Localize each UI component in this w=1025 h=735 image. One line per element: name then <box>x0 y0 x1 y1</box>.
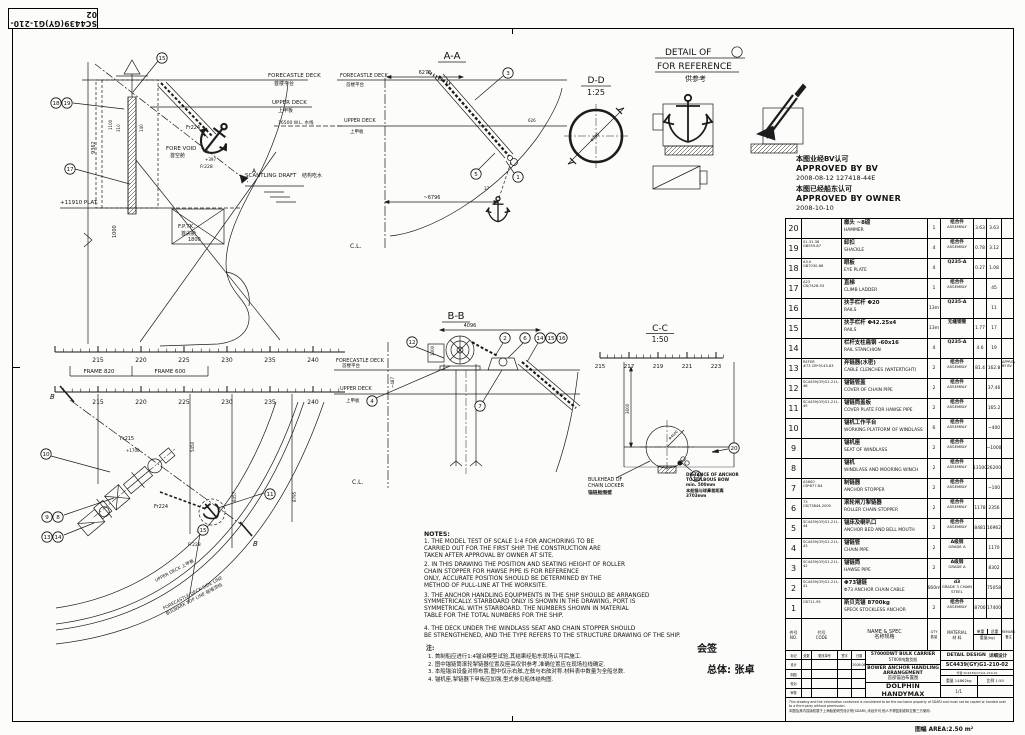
note-item: 4. THE DECK UNDER THE WINDLASS SEAT AND … <box>424 626 726 640</box>
callout-15: 15 <box>198 525 208 535</box>
bom-cell: 4 <box>786 539 802 558</box>
svg-text:12: 12 <box>408 340 415 346</box>
dim: 1800 <box>188 237 201 243</box>
bom-row: 16扶手栏杆 Φ20RAILS13mQ235-A11 <box>786 299 1013 319</box>
bom-cell <box>802 459 842 478</box>
svg-text:240: 240 <box>307 357 319 364</box>
bom-cell: 卸扣SHACKLE <box>842 239 928 258</box>
dd-title: D-D <box>587 76 604 86</box>
callout-12: 12 <box>407 337 417 347</box>
bom-cell: 13m <box>928 319 941 338</box>
svg-text:215: 215 <box>595 364 606 370</box>
bom-cell: 7 <box>786 479 802 498</box>
bom-cell <box>1002 579 1015 598</box>
bom-cell <box>1002 219 1015 238</box>
svg-text:223: 223 <box>711 364 722 370</box>
bom-cell: 18 <box>786 259 802 278</box>
zongti-signature: 总体: 张卓 <box>707 661 754 676</box>
dim: 4096 <box>464 323 477 329</box>
fr215-label: Fr215 <box>120 436 134 442</box>
bom-cell: 15 <box>786 319 802 338</box>
callout-14: 14 <box>535 333 545 343</box>
svg-text:220: 220 <box>135 399 147 406</box>
callout-9: 9 <box>42 512 52 522</box>
svg-text:225: 225 <box>178 357 190 364</box>
bom-cell: 无缝钢管 <box>941 319 974 338</box>
bom-cell: 组合件ASSEMBLY <box>941 279 974 298</box>
titleblock-right: DETAIL DESIGN详细设计 SC4439(GY)G1-210-02 代替… <box>941 651 1013 697</box>
svg-text:16: 16 <box>558 336 566 342</box>
bom-row: 3SC4439(GY)G1-211-42锚链筒HAWSE PIPE2A级钢GRA… <box>786 559 1013 579</box>
bom-cell <box>1002 339 1015 358</box>
bom-cell: 榔头 ~8磅HAMMER <box>842 219 928 238</box>
bom-cell: 锚机WINDLASS AND MOORING WINCH <box>842 459 928 478</box>
bom-row: 11SC4439(GY)G1-211-45锚链筒盖板COVER PLATE FO… <box>786 399 1013 419</box>
svg-text:15: 15 <box>547 336 555 342</box>
notes-block: NOTES: 1. THE MODEL TEST OF SCALE 1:4 FO… <box>424 531 726 684</box>
bom-cell: 滚轮闸刀掣链器ROLLER CHAIN STOPPER <box>842 499 928 518</box>
bom-cell: 组合件ASSEMBLY <box>941 479 974 498</box>
svg-text:217: 217 <box>624 364 635 370</box>
bom-cell <box>1002 299 1015 318</box>
callout-5: 5 <box>471 169 481 179</box>
bom-cell: A23 CB/T428-93 <box>802 279 842 298</box>
dd-scale: 1:25 <box>587 88 605 97</box>
bom-cell <box>1002 319 1015 338</box>
bom-cell: 8302 <box>987 559 1002 578</box>
note-item: 2. IN THIS DRAWING THE POSITION AND SEAT… <box>424 562 726 589</box>
callout-4: 4 <box>367 396 377 406</box>
bom-cell: 10 <box>786 419 802 438</box>
svg-text:1: 1 <box>516 175 520 181</box>
owner-approval-cn: 本图已经船东认可 <box>796 185 1006 194</box>
aa-forecastle-label: FORECASTLE DECK <box>340 73 389 79</box>
bom-cell: 2 <box>928 519 941 538</box>
bom-cell <box>974 419 987 438</box>
bom-cell <box>974 279 987 298</box>
bom-cell: 2 <box>928 359 941 378</box>
dim: 1000 <box>112 225 118 238</box>
callout-3: 3 <box>503 68 513 78</box>
bom-cell: 斯贝克锚 8700kgSPECK STOCKLESS ANCHOR <box>842 599 928 618</box>
bom-cell: 2 <box>928 459 941 478</box>
border-tick <box>12 367 20 368</box>
cc-frame-ruler <box>600 352 723 358</box>
bom-cell: 4 <box>928 339 941 358</box>
detail1-title: DETAIL OF <box>665 48 711 58</box>
bom-cell: 8700 <box>974 599 987 618</box>
drawing-number-box: SC4439(GY)G1-210-02 <box>8 8 98 29</box>
detail-reference-view: DETAIL OF 1 FOR REFERENCE 供参考 <box>645 42 820 197</box>
profile-frame-ruler <box>55 346 345 352</box>
svg-text:20: 20 <box>730 446 738 452</box>
design-stage: DETAIL DESIGN <box>947 653 986 658</box>
callout-15: 15 <box>157 53 167 63</box>
note-item-cn: 4. 锚机座,掣链器下甲板应加强,型式参见船体结构图. <box>428 677 726 684</box>
section-bb-view: B-B 4096 1300 ~487 FORECASTLE DECK 首楼 <box>332 306 584 511</box>
svg-text:220: 220 <box>135 357 147 364</box>
bom-cell: 13100 <box>974 459 987 478</box>
bom-cell: 锚机座SEAT OF WINDLASS <box>842 439 928 458</box>
svg-text:19: 19 <box>63 101 71 107</box>
note-item-cn: 1. 首制船应进行1:4锚泊模型试验,其结果经船东现场认可后施工. <box>428 654 726 661</box>
aa-upper-label: UPPER DECK <box>344 118 376 124</box>
bb-centerline-label: C.L. <box>352 479 363 486</box>
svg-text:锚链舱围壁: 锚链舱围壁 <box>588 489 612 496</box>
svg-text:14: 14 <box>536 336 544 342</box>
callout-14: 14 <box>53 532 63 542</box>
bom-cell: 组合件ASSEMBLY <box>941 459 974 478</box>
bom-cell: 组合件ASSEMBLY <box>941 359 974 378</box>
bom-cell: 1170 <box>987 539 1002 558</box>
bom-row: 673 CB/T3844-2000滚轮闸刀掣链器ROLLER CHAIN STO… <box>786 499 1013 519</box>
drawing-scale: 1:50 <box>995 678 1004 683</box>
frame-label: 215 <box>92 357 104 364</box>
detail-dd-view: D-D 1:25 Φ735 <box>556 72 656 184</box>
svg-text:11: 11 <box>266 492 274 498</box>
svg-text:15: 15 <box>158 56 166 62</box>
profile-view: 215 220 225 230 235 240 FRAME 820 FRAME … <box>40 42 352 382</box>
bom-cell: 0.78 <box>974 239 987 258</box>
bom-cell: 组合件ASSEMBLY <box>941 599 974 618</box>
svg-text:上甲板: 上甲板 <box>278 107 293 114</box>
svg-text:18: 18 <box>52 101 60 107</box>
bom-cell: CB711-95 <box>802 599 842 618</box>
bom-cell <box>974 579 987 598</box>
dim: 6272 <box>419 70 432 76</box>
bom-cell: 1 <box>928 279 941 298</box>
bom-cell: 37.46 <box>987 379 1002 398</box>
bom-cell: 17 <box>987 319 1002 338</box>
dim: Φ4600 <box>668 430 679 441</box>
callout-15: 15 <box>546 333 556 343</box>
bom-cell: 组合件ASSEMBLY <box>941 379 974 398</box>
bom-cell: 制链器ANCHOR STOPPER <box>842 479 928 498</box>
bom-cell: 16 <box>786 299 802 318</box>
bom-cell: 2 <box>786 579 802 598</box>
bom-cell <box>1002 419 1015 438</box>
dim: 1100 <box>108 119 113 130</box>
fore-void-label: FORE VOID <box>166 146 196 152</box>
class-name: DOLPHIN HANDYMAX <box>866 683 940 697</box>
detail1-sub-cn: 供参考 <box>685 74 706 83</box>
bom-cell <box>974 379 987 398</box>
bom-row: 14栏杆支柱扁钢 -60x16RAIL STANCHION4Q235-A4.61… <box>786 339 1013 359</box>
bom-rows: 20榔头 ~8磅HAMMER1组合件ASSEMBLY3.633.631901-3… <box>786 219 1013 619</box>
bom-cell: 锚链管CHAIN PIPE <box>842 539 928 558</box>
notes-heading: NOTES: <box>424 531 726 538</box>
bom-cell: 162.8 <box>987 359 1002 378</box>
disclaimer: This drawing and the information contain… <box>786 697 1013 721</box>
drawing-sheet: SC4439(GY)G1-210-02 本图业经BV认可 APPROVED BY… <box>0 0 1025 735</box>
forecastle-deck-label: FORECASTLE DECK <box>268 73 321 79</box>
bom-cell: 16962 <box>987 519 1002 538</box>
bom-cell: SC4439(GY)G1-211-44 <box>802 519 842 538</box>
svg-text:首尖舱: 首尖舱 <box>181 230 196 237</box>
cc-scale: 1:50 <box>652 335 669 344</box>
note-item-cn: 3. 本船锚泊设备对称布置,图中仅示右舷,左舷与右舷对称.材料表中数量为全船总数… <box>428 669 726 676</box>
bom-cell <box>1002 259 1015 278</box>
bom-row: 1901-31.36 GB559-87卸扣SHACKLE4组合件ASSEMBLY… <box>786 239 1013 259</box>
bom-cell: 4 <box>928 239 941 258</box>
bom-cell: A级钢GRADE A <box>941 539 974 558</box>
bom-cell: 11 <box>987 299 1002 318</box>
bom-table: 20榔头 ~8磅HAMMER1组合件ASSEMBLY3.633.631901-3… <box>785 218 1014 651</box>
bom-cell: 2 <box>928 539 941 558</box>
svg-text:3: 3 <box>506 71 510 77</box>
svg-text:235: 235 <box>264 399 276 406</box>
svg-text:230: 230 <box>221 399 233 406</box>
bom-cell: 2 <box>928 499 941 518</box>
bom-cell: ~1000 <box>987 439 1002 458</box>
fr228-label: Fr228 <box>200 164 213 170</box>
bom-cell: APPROVED BY BV <box>1002 359 1015 378</box>
dim: 8795 <box>292 491 297 502</box>
bom-cell: 栏杆支柱扁钢 -60x16RAIL STANCHION <box>842 339 928 358</box>
section-b-letter: B <box>50 393 55 401</box>
bom-cell: 660m <box>928 579 941 598</box>
title-block: 标记处数 更改单号签字 日期 设计2008.06 制图 校对 审核 57000D… <box>785 650 1014 722</box>
bom-cell: 1 <box>928 219 941 238</box>
callout-19: 19 <box>62 98 72 108</box>
titleblock-drawing-no: SC4439(GY)G1-210-02 <box>941 661 1013 670</box>
fptk-label: F.P.TK. <box>178 224 195 230</box>
revision-sign-grid: 标记处数 更改单号签字 日期 设计2008.06 制图 校对 审核 <box>786 651 866 697</box>
bom-cell <box>974 399 987 418</box>
bom-cell: 锚链筒HAWSE PIPE <box>842 559 928 578</box>
bom-row: 18A3.0 GB7030-86眼板EYE PLATE4Q235-A0.271.… <box>786 259 1013 279</box>
bom-cell: 5 <box>786 519 802 538</box>
bom-cell: 6 <box>928 419 941 438</box>
bom-row: 12SC4439(GY)G1-211-46锚链管盖COVER OF CHAIN … <box>786 379 1013 399</box>
area-note: 图幅 AREA:2.50 m² <box>915 724 973 733</box>
dim: ~487 <box>390 377 395 388</box>
bom-cell <box>974 299 987 318</box>
bom-cell: 2 <box>928 599 941 618</box>
bom-cell: 直梯CLIMB LADDER <box>842 279 928 298</box>
bom-cell: SC4439(GY)G1-211-43 <box>802 539 842 558</box>
bom-cell: 眼板EYE PLATE <box>842 259 928 278</box>
fr224-label: Fr224 <box>186 125 200 131</box>
bom-cell: SC4439(GY)G1-211-41 <box>802 579 842 598</box>
svg-text:10: 10 <box>42 452 50 458</box>
owner-approval-date: 2008-10-10 <box>796 204 1006 212</box>
bom-row: 17A23 CB/T428-93直梯CLIMB LADDER1组合件ASSEMB… <box>786 279 1013 299</box>
total-weight: 14862kg <box>955 678 972 683</box>
dd-linework <box>564 86 628 168</box>
svg-text:240: 240 <box>307 399 319 406</box>
bom-cell <box>1002 519 1015 538</box>
bom-cell <box>1002 399 1015 418</box>
callout-8: 8 <box>53 512 63 522</box>
bom-cell: ~400 <box>987 419 1002 438</box>
svg-text:CHAIN LOCKER: CHAIN LOCKER <box>588 483 625 489</box>
callout-16: 16 <box>557 333 567 343</box>
callout-2: 2 <box>500 333 510 343</box>
svg-text:219: 219 <box>653 364 664 370</box>
drawing-number: SC4439(GY)G1-210-02 <box>9 10 97 28</box>
bom-cell: Q235-A <box>941 259 974 278</box>
section-bb-title: B-B <box>448 311 465 322</box>
owner-approval-en: APPROVED BY OWNER <box>796 194 1006 204</box>
bom-cell <box>1002 439 1015 458</box>
bom-cell: 0.27 <box>974 259 987 278</box>
dim: 3600 <box>625 403 630 414</box>
bom-cell: 组合件ASSEMBLY <box>941 399 974 418</box>
dim: 140 <box>139 124 144 132</box>
bom-cell <box>1002 559 1015 578</box>
svg-text:结构吃水: 结构吃水 <box>302 172 322 179</box>
bom-cell: SC4439(GY)G1-211-46 <box>802 379 842 398</box>
svg-text:13: 13 <box>43 535 51 541</box>
callout-6: 6 <box>520 333 530 343</box>
bom-cell: 17400 <box>987 599 1002 618</box>
bom-cell: 组合件ASSEMBLY <box>941 439 974 458</box>
bom-cell: 4.6 <box>974 339 987 358</box>
svg-text:+1700: +1700 <box>126 448 140 453</box>
bom-cell <box>802 219 842 238</box>
notes-heading-cn: 注: <box>426 643 726 652</box>
callout-13: 13 <box>42 532 52 542</box>
waterline-label: 16500 W.L. 水线 <box>278 119 314 126</box>
bom-cell: 2 <box>928 559 941 578</box>
bom-cell: 12 <box>786 379 802 398</box>
bom-cell: SC4439(GY)G1-211-42 <box>802 559 842 578</box>
bom-cell: 8 <box>786 459 802 478</box>
bom-cell: 75058 <box>987 579 1002 598</box>
profile-linework <box>60 60 342 376</box>
border-tick <box>512 716 513 722</box>
titleblock-center: 57000DWT BULK CARRIER 57000吨散货船 BOWER AN… <box>866 651 941 697</box>
fr228-label: Fr228 <box>188 542 201 548</box>
bom-row: 8锚机WINDLASS AND MOORING WINCH2组合件ASSEMBL… <box>786 459 1013 479</box>
bv-approval-date: 2008-08-12 127418-44E <box>796 174 1006 182</box>
dim: ~6796 <box>424 195 441 201</box>
bom-cell: A5600 CB*877-84 <box>802 479 842 498</box>
detail1-sub: FOR REFERENCE <box>657 62 732 72</box>
huiqian-label: 会签 <box>697 640 754 655</box>
approval-stamps: 本图业经BV认可 APPROVED BY BV 2008-08-12 12741… <box>796 155 1006 215</box>
bom-cell <box>1002 379 1015 398</box>
bom-cell: 11 <box>786 399 802 418</box>
bom-cell: 弃链器(水密)CABLE CLENCHES (WATERTIGHT) <box>842 359 928 378</box>
bom-cell <box>1002 499 1015 518</box>
bom-row: 15扶手栏杆 Φ42.25x4RAILS13m无缝钢管1.7717 <box>786 319 1013 339</box>
bom-cell: 45 <box>987 279 1002 298</box>
callout-20: 20 <box>729 443 739 453</box>
bom-cell: 81.4 <box>974 359 987 378</box>
section-aa-view: A-A 6272 626 37 ~6796 FORECASTLE DECK 首楼… <box>332 48 572 260</box>
plat-label: +11910 PLAT. <box>60 200 98 206</box>
bom-row: 1CB711-95斯贝克锚 8700kgSPECK STOCKLESS ANCH… <box>786 599 1013 619</box>
bom-cell <box>1002 459 1015 478</box>
dim: 9362 <box>91 141 97 154</box>
bom-cell <box>802 419 842 438</box>
bom-cell: 13 <box>786 359 802 378</box>
svg-text:7: 7 <box>478 404 482 410</box>
note-item: 1. THE MODEL TEST OF SCALE 1:4 FOR ANCHO… <box>424 539 726 559</box>
bom-header: 件号NO. 代号CODE NAME & SPEC名称规格 QTY数量 MATER… <box>786 619 1013 651</box>
bom-row: 9锚机座SEAT OF WINDLASS2组合件ASSEMBLY~1000 <box>786 439 1013 459</box>
bom-cell <box>802 439 842 458</box>
svg-text:15: 15 <box>199 528 207 534</box>
bom-cell: 3 <box>786 559 802 578</box>
section-cc-title: C-C <box>652 324 668 334</box>
bom-cell <box>974 559 987 578</box>
bom-cell: d3GRADE 3 CHAIN STEEL <box>941 579 974 598</box>
bom-row: 7A5600 CB*877-84制链器ANCHOR STOPPER2组合件ASS… <box>786 479 1013 499</box>
bom-cell: 扶手栏杆 Φ42.25x4RAILS <box>842 319 928 338</box>
bom-cell: 锚机工作平台WORKING PLATFORM OF WINDLASS <box>842 419 928 438</box>
callout-7: 7 <box>475 401 485 411</box>
bom-cell: 锚床及喇叭口ANCHOR BED AND BELL MOUTH <box>842 519 928 538</box>
plan-view: 215 220 225 230 235 240 B B Fr215 +1700 … <box>40 372 352 640</box>
bom-row: 10锚机工作平台WORKING PLATFORM OF WINDLASS6组合件… <box>786 419 1013 439</box>
svg-text:4: 4 <box>370 399 374 405</box>
section-aa-title: A-A <box>444 51 461 62</box>
bom-cell: 165.2 <box>987 399 1002 418</box>
note-item: 3. THE ANCHOR HANDLING EQUIPMENTS IN THE… <box>424 593 726 620</box>
bom-cell <box>974 439 987 458</box>
bom-cell <box>974 539 987 558</box>
svg-text:B: B <box>253 540 258 548</box>
bom-cell: 2 <box>928 439 941 458</box>
aa-centerline-label: C.L. <box>350 243 361 250</box>
callout-11: 11 <box>265 489 275 499</box>
svg-text:5: 5 <box>474 172 478 178</box>
plan-frame-ruler <box>55 386 345 392</box>
bom-cell <box>974 479 987 498</box>
svg-text:225: 225 <box>178 399 190 406</box>
svg-text:首楼平台: 首楼平台 <box>342 362 360 369</box>
callout-1: 1 <box>513 172 523 182</box>
svg-text:8: 8 <box>56 515 60 521</box>
aa-linework <box>337 62 567 248</box>
bom-cell <box>802 339 842 358</box>
bom-cell: 锚链筒盖板COVER PLATE FOR HAWSE PIPE <box>842 399 928 418</box>
bom-cell <box>802 319 842 338</box>
bom-cell: 2 <box>928 399 941 418</box>
bom-cell <box>1002 239 1015 258</box>
bom-cell <box>1002 479 1015 498</box>
bom-cell: 2 <box>928 479 941 498</box>
bom-cell <box>1002 599 1015 618</box>
upper-deck-label: UPPER DECK <box>272 100 307 106</box>
bom-cell: 19 <box>786 239 802 258</box>
bom-cell: SC4439(GY)G1-211-45 <box>802 399 842 418</box>
bom-cell: 3.12 <box>987 239 1002 258</box>
signoff-block: 会签 总体: 张卓 <box>697 640 754 676</box>
callout-18: 18 <box>51 98 61 108</box>
svg-text:首空舱: 首空舱 <box>170 152 185 159</box>
bom-row: 13REFER #73 CB*3143-83弃链器(水密)CABLE CLENC… <box>786 359 1013 379</box>
bom-cell: 19 <box>987 339 1002 358</box>
bom-cell: 组合件ASSEMBLY <box>941 519 974 538</box>
bulwark-line-label: BULWARK TOP LINE 舷墙顶线 <box>164 581 224 617</box>
cc-bulkhead-label: BULKHEAD OF <box>588 477 623 483</box>
bom-cell <box>802 299 842 318</box>
svg-text:2: 2 <box>503 336 507 342</box>
dim: 37 <box>484 186 490 191</box>
svg-text:6: 6 <box>523 336 527 342</box>
bv-approval-en: APPROVED BY BV <box>796 164 1006 174</box>
bv-approval-cn: 本图业经BV认可 <box>796 155 1006 164</box>
bom-cell: 14 <box>786 339 802 358</box>
bom-cell: 13m <box>928 299 941 318</box>
bom-cell: 3.63 <box>987 219 1002 238</box>
bom-cell: 组合件ASSEMBLY <box>941 239 974 258</box>
bom-cell: 20 <box>786 219 802 238</box>
